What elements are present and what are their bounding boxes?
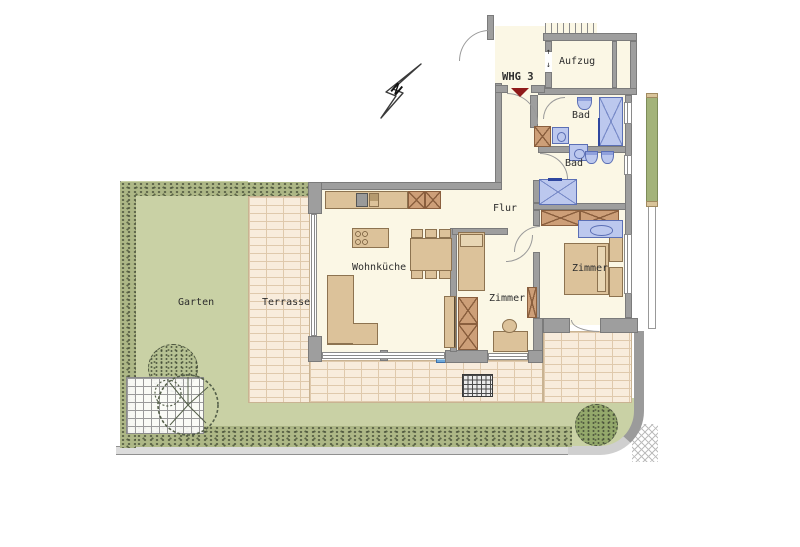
desk xyxy=(493,331,528,352)
entrance-marker xyxy=(511,88,529,97)
north-arrow-icon: N xyxy=(374,62,424,122)
nightstand xyxy=(609,267,623,297)
apartment-label: WHG 3 xyxy=(502,71,534,83)
terrace-bush xyxy=(575,404,618,446)
dining-chair xyxy=(425,229,437,238)
elevator-arrow-down: ↓ xyxy=(546,59,551,71)
hedge-top xyxy=(120,182,318,196)
stair-treads xyxy=(545,23,597,33)
dining-chair xyxy=(411,229,423,238)
area-label-terrasse: Terrasse xyxy=(262,297,310,309)
washing-machine xyxy=(552,127,569,144)
shelf xyxy=(527,287,537,318)
wall xyxy=(543,33,637,41)
wall xyxy=(495,83,502,184)
window-east-bad-top xyxy=(624,102,632,124)
door-arc-stairwell xyxy=(459,30,489,61)
wall xyxy=(600,318,638,333)
room-label-zimmer-small: Zimmer xyxy=(489,293,525,305)
dining-chair xyxy=(439,270,451,279)
window-east-bad-mid xyxy=(624,155,632,175)
shower-rail xyxy=(598,118,600,146)
north-label: N xyxy=(387,80,405,100)
shower-handle xyxy=(548,178,562,181)
room-label-aufzug: Aufzug xyxy=(559,56,595,68)
wall xyxy=(308,336,322,362)
planting-strip-cap-top xyxy=(646,93,658,98)
wardrobe xyxy=(458,297,478,350)
terrace-area-south xyxy=(310,360,543,403)
dining-chair xyxy=(425,270,437,279)
cooktop xyxy=(354,230,369,246)
shower xyxy=(539,179,577,205)
room-label-wohnkueche: Wohnküche xyxy=(352,262,406,274)
terrace-area-east xyxy=(543,331,632,403)
desk-chair xyxy=(502,319,517,333)
dining-chair xyxy=(411,270,423,279)
wall xyxy=(538,88,637,95)
kitchen-sink xyxy=(356,193,368,207)
dining-chair xyxy=(439,229,451,238)
kitchen-tall-cabinets xyxy=(408,191,441,209)
floor-shaft xyxy=(617,40,630,88)
wall xyxy=(531,85,545,93)
dining-table xyxy=(410,238,452,271)
terrace-sliding-door xyxy=(322,352,445,359)
sofa xyxy=(327,275,354,345)
wall xyxy=(630,41,637,95)
planting-strip-east xyxy=(646,96,658,204)
wall xyxy=(543,318,570,333)
light-well-grate xyxy=(462,374,493,397)
wall xyxy=(528,350,543,363)
area-label-garten: Garten xyxy=(178,297,214,309)
window-west xyxy=(311,214,317,336)
room-label-bad-top: Bad xyxy=(572,110,590,122)
garden-tree xyxy=(140,363,230,447)
elevator-arrow-up: ↑ xyxy=(546,46,551,58)
room-label-flur: Flur xyxy=(493,203,517,215)
room-label-bad-mid: Bad xyxy=(565,158,583,170)
window-zimmer-small xyxy=(488,353,528,360)
window-east-zimmer xyxy=(624,234,632,294)
wall xyxy=(308,182,502,190)
wall xyxy=(545,72,552,88)
kitchen-drawers xyxy=(369,193,379,207)
shower xyxy=(599,97,623,146)
wall xyxy=(533,210,540,226)
wall xyxy=(308,182,322,214)
sidewalk xyxy=(116,446,568,455)
floor-plan-canvas: ↑ ↓ N WHG 3 Aufzug Bad Bad Flur Wohnküch… xyxy=(0,0,800,547)
sofa-chaise xyxy=(353,323,378,345)
room-label-zimmer-right: Zimmer xyxy=(572,263,608,275)
bathtub xyxy=(578,220,623,238)
bed-pillow xyxy=(460,234,483,247)
railing-east xyxy=(648,207,656,329)
wall xyxy=(495,85,508,93)
hall-cabinet xyxy=(534,126,551,147)
tall-locker xyxy=(444,296,456,348)
wall xyxy=(612,41,617,88)
